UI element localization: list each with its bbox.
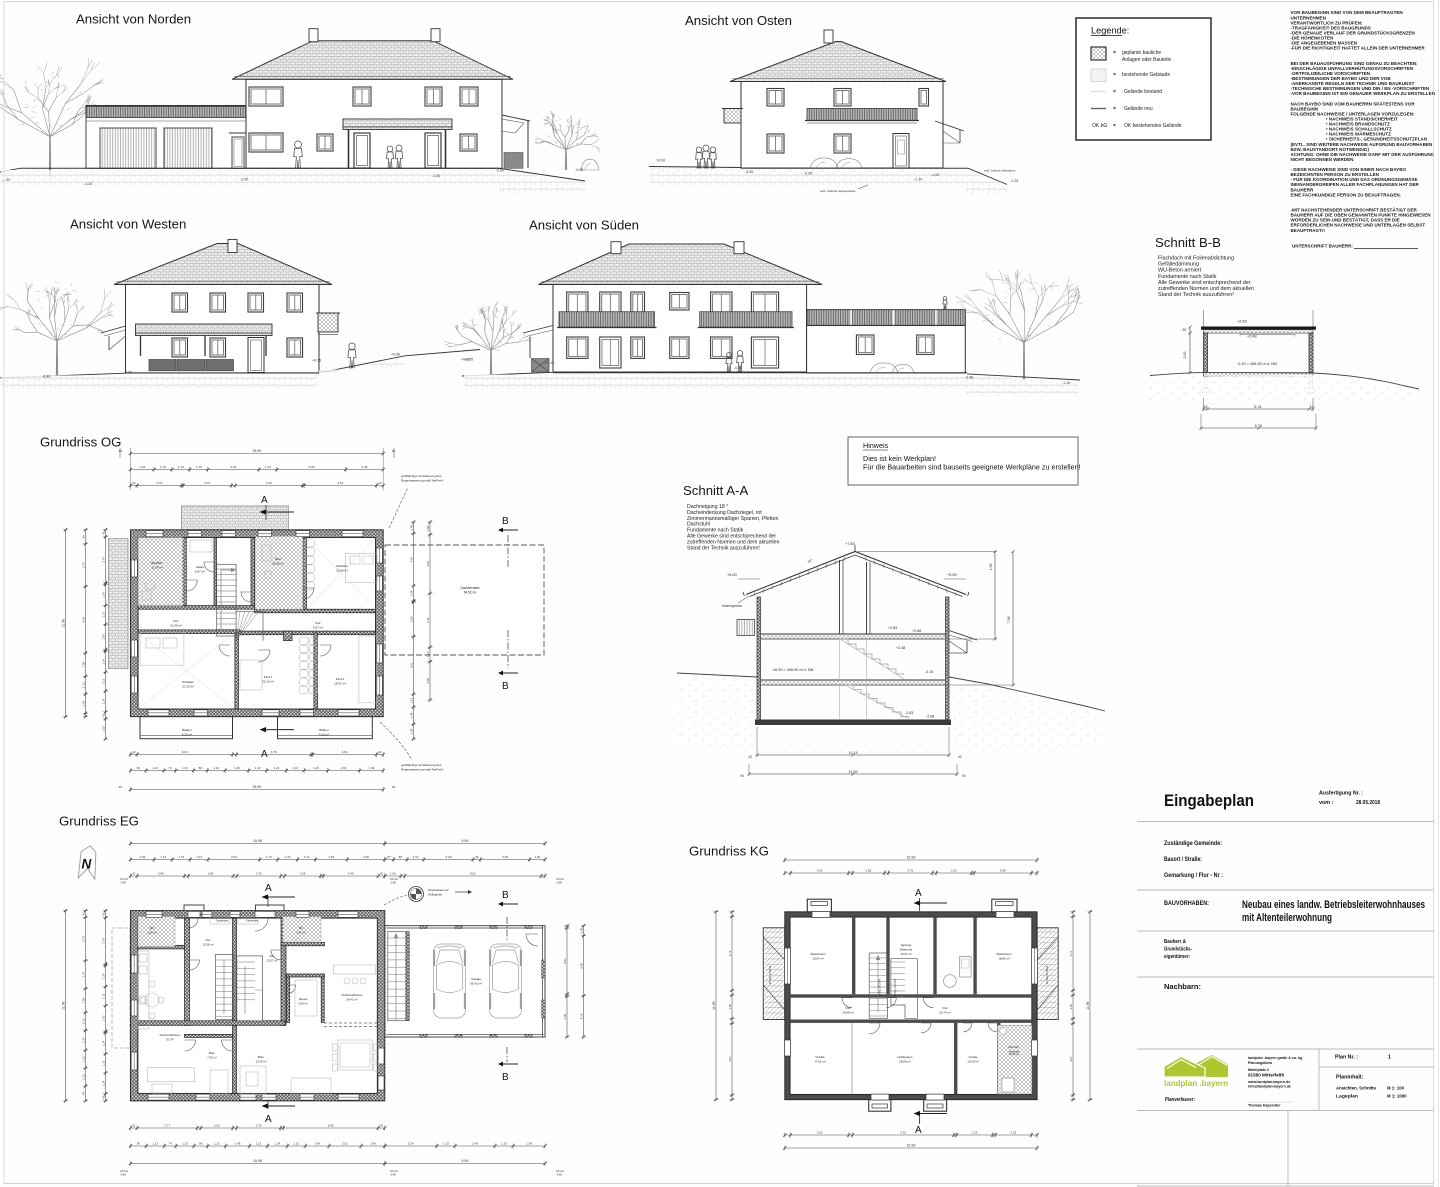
svg-text:B: B	[502, 681, 509, 692]
svg-text:+7.83: +7.83	[845, 542, 855, 546]
svg-text:1.13: 1.13	[81, 1056, 85, 1062]
svg-text:1.13: 1.13	[501, 1142, 507, 1146]
svg-text:Vorräte: Vorräte	[815, 1055, 825, 1059]
svg-text:19,37 m²: 19,37 m²	[900, 952, 911, 956]
svg-text:Thomas Kapsreiter: Thomas Kapsreiter	[1248, 1104, 1281, 1108]
svg-text:Schnitt B-B: Schnitt B-B	[1155, 235, 1221, 250]
svg-text:A: A	[265, 1114, 272, 1125]
svg-text:27,20 m²: 27,20 m²	[182, 685, 194, 689]
svg-text:28,06 m²: 28,06 m²	[899, 1060, 910, 1064]
svg-text:-1.30: -1.30	[914, 178, 922, 182]
svg-text:Ausfertigung Nr. :: Ausfertigung Nr. :	[1319, 791, 1363, 797]
svg-text:4,26 m²: 4,26 m²	[319, 733, 329, 737]
svg-text:42: 42	[101, 1095, 105, 1099]
svg-text:-0.60: -0.60	[496, 169, 504, 173]
svg-text:12,49 m²: 12,49 m²	[255, 1060, 266, 1064]
svg-text:-0.15: -0.15	[925, 670, 933, 674]
svg-text:Gemarkung / Flur - Nr :: Gemarkung / Flur - Nr :	[1164, 873, 1223, 879]
svg-text:OK bG: OK bG	[120, 1169, 128, 1173]
svg-text:+2.83: +2.83	[888, 626, 897, 630]
svg-text:3.63: 3.63	[817, 869, 823, 873]
svg-text:1.13: 1.13	[196, 855, 202, 859]
svg-text:2.25: 2.25	[972, 1131, 978, 1135]
svg-text:15.99: 15.99	[906, 1144, 915, 1148]
svg-text:A: A	[265, 883, 272, 894]
svg-text:1.49: 1.49	[314, 1142, 320, 1146]
svg-text:Grundriss OG: Grundriss OG	[40, 434, 121, 449]
svg-text:1.24: 1.24	[285, 855, 291, 859]
svg-text:B: B	[502, 1072, 509, 1083]
svg-text:5.01: 5.01	[409, 662, 413, 668]
svg-text:Balkon: Balkon	[182, 728, 192, 732]
svg-text:-0.80: -0.80	[556, 881, 562, 885]
svg-text:1.49: 1.49	[313, 766, 319, 770]
svg-text:1.13: 1.13	[409, 697, 413, 703]
svg-text:Planungsbüro: Planungsbüro	[1248, 1061, 1273, 1065]
svg-text:1.24: 1.24	[275, 1142, 281, 1146]
svg-text:Hinweis: Hinweis	[863, 441, 889, 450]
svg-text:-0.80: -0.80	[556, 1173, 562, 1177]
svg-text:1.13: 1.13	[160, 465, 166, 469]
svg-text:42: 42	[132, 481, 136, 485]
svg-text:Flachdach mit Folienabdichtung: Flachdach mit Folienabdichtung	[1158, 256, 1234, 262]
svg-text:1.24: 1.24	[81, 1037, 85, 1043]
svg-text:4.21: 4.21	[426, 617, 430, 623]
svg-text:11.99: 11.99	[61, 1002, 65, 1010]
svg-text:42: 42	[380, 872, 384, 876]
svg-text:15.99: 15.99	[253, 1159, 262, 1163]
svg-text:1.99: 1.99	[526, 1142, 532, 1146]
svg-text:2.25: 2.25	[1011, 1131, 1017, 1135]
svg-text:Schmutz-: Schmutz-	[1008, 1045, 1019, 1049]
svg-text:Flur: Flur	[206, 938, 211, 942]
svg-text:1.00: 1.00	[534, 855, 540, 859]
svg-text:2.74: 2.74	[101, 938, 105, 944]
svg-text:landplan .bayern gmbh & co. kg: landplan .bayern gmbh & co. kg	[1248, 1056, 1302, 1060]
svg-text:Eingabeplan: Eingabeplan	[1164, 791, 1254, 810]
svg-text:Garderobe: Garderobe	[216, 919, 229, 923]
svg-text:42: 42	[132, 1124, 136, 1128]
svg-text:4.71: 4.71	[1069, 950, 1073, 956]
svg-text:2.98: 2.98	[158, 872, 164, 876]
svg-text:±0.00 = 496.50 m ü. NN: ±0.00 = 496.50 m ü. NN	[773, 668, 814, 672]
svg-text:4.58: 4.58	[426, 561, 430, 567]
svg-text:4.56: 4.56	[409, 556, 413, 562]
svg-text:+5.00: +5.00	[727, 573, 737, 577]
svg-text:Grundriss EG: Grundriss EG	[59, 814, 139, 829]
svg-text:16,56 m²: 16,56 m²	[272, 562, 284, 566]
svg-text:1.00: 1.00	[579, 927, 583, 933]
svg-text:3,41 m²: 3,41 m²	[296, 931, 306, 935]
svg-text:Bauherr &: Bauherr &	[1164, 939, 1186, 945]
svg-text:-VOR BAUBEGINN IST EIN GENAUER: -VOR BAUBEGINN IST EIN GENAUER WERKPLAN …	[1291, 91, 1436, 96]
svg-text:9.99: 9.99	[461, 839, 468, 843]
svg-text:+0.66: +0.66	[391, 353, 400, 357]
svg-text:zutreffenden Normen und dem ak: zutreffenden Normen und dem aktuellen	[1158, 286, 1254, 292]
svg-text:Gelände bestand: Gelände bestand	[1124, 89, 1162, 95]
svg-text:42: 42	[378, 481, 382, 485]
svg-text:-0.80: -0.80	[120, 1173, 126, 1177]
svg-text:OK bG: OK bG	[390, 877, 398, 881]
svg-text:2.20: 2.20	[951, 869, 957, 873]
svg-text:W.Stg 17/27/A: W.Stg 17/27/A	[878, 979, 882, 997]
svg-text:1.13: 1.13	[213, 766, 219, 770]
svg-text:35: 35	[1182, 328, 1186, 332]
svg-text:-1.25: -1.25	[1010, 179, 1018, 183]
svg-text:10,30 m²: 10,30 m²	[170, 624, 182, 628]
svg-text:Schlafen: Schlafen	[336, 564, 348, 568]
svg-text:+0.15: +0.15	[545, 361, 554, 365]
svg-text:Speise: Speise	[299, 997, 308, 1001]
svg-text:Flur: Flur	[270, 954, 275, 958]
svg-text:+2.48: +2.48	[896, 646, 905, 650]
svg-text:1.13: 1.13	[178, 855, 184, 859]
svg-text:20,66 m²: 20,66 m²	[336, 569, 348, 573]
svg-text:BAUVORHABEN:: BAUVORHABEN:	[1164, 901, 1209, 907]
svg-text:-2.83: -2.83	[905, 711, 913, 715]
svg-text:Anlagen oder Bauteile: Anlagen oder Bauteile	[1122, 57, 1171, 63]
svg-text:2.36: 2.36	[363, 855, 369, 859]
svg-text:5,63 m²: 5,63 m²	[298, 1002, 308, 1006]
svg-text:Grundstücks-: Grundstücks-	[1164, 947, 1192, 953]
svg-text:NICHT BEGONNEN WERDEN: NICHT BEGONNEN WERDEN	[1291, 157, 1354, 162]
svg-text:22,74 m²: 22,74 m²	[939, 1011, 950, 1015]
svg-text:-1.00: -1.00	[2, 178, 10, 182]
svg-text:-1.30: -1.30	[84, 182, 92, 186]
svg-text:Garderobe: Garderobe	[246, 919, 259, 923]
svg-text:1.24: 1.24	[274, 766, 280, 770]
svg-text:2.00: 2.00	[214, 1124, 220, 1128]
svg-text:8.51: 8.51	[470, 872, 476, 876]
svg-text:13,27 m²: 13,27 m²	[266, 959, 277, 963]
svg-text:1.13: 1.13	[81, 1018, 85, 1024]
svg-text:M 1: 100: M 1: 100	[1387, 1086, 1404, 1091]
svg-text:1: 1	[1388, 1055, 1391, 1061]
svg-text:W.Stg 17/27/A: W.Stg 17/27/A	[893, 979, 897, 997]
svg-text:11.99: 11.99	[848, 770, 857, 774]
svg-text:-0.15 = 496.35 m ü. NN: -0.15 = 496.35 m ü. NN	[1237, 362, 1277, 366]
svg-text:6.51: 6.51	[563, 958, 567, 964]
svg-text:74: 74	[168, 766, 172, 770]
svg-text:6.00: 6.00	[579, 963, 583, 969]
svg-text:Dachterrasse: Dachterrasse	[461, 586, 480, 590]
svg-text:1.13: 1.13	[152, 766, 158, 770]
svg-text:4.01: 4.01	[342, 750, 348, 754]
svg-text:Güllegrube: Güllegrube	[428, 893, 443, 897]
svg-text:11.99: 11.99	[712, 1002, 716, 1010]
svg-text:1.99: 1.99	[328, 855, 334, 859]
svg-text:64,52 m²: 64,52 m²	[464, 591, 477, 595]
svg-text:4.70: 4.70	[271, 750, 277, 754]
svg-text:Regenwassers gemäß NwFreiV: Regenwassers gemäß NwFreiV	[401, 479, 443, 483]
svg-text:A: A	[261, 495, 268, 506]
svg-text:Vorräte: Vorräte	[968, 1055, 978, 1059]
svg-text:86: 86	[199, 766, 203, 770]
svg-text:B: B	[502, 890, 509, 901]
svg-text:-0.80: -0.80	[42, 375, 50, 379]
svg-text:1.30: 1.30	[409, 590, 413, 596]
svg-text:=0.00: =0.00	[656, 159, 665, 163]
svg-text:49: 49	[475, 855, 479, 859]
svg-text:großflächige Versickerung des: großflächige Versickerung des	[401, 474, 442, 478]
svg-text:1.13: 1.13	[101, 678, 105, 684]
svg-text:7,03 m²: 7,03 m²	[207, 1056, 217, 1060]
svg-text:1.24: 1.24	[101, 592, 105, 598]
svg-text:1.13: 1.13	[304, 855, 310, 859]
svg-text:Alle Gewerke sind entschpreche: Alle Gewerke sind entschprechend der	[1158, 280, 1251, 286]
svg-text:Nachbarn:: Nachbarn:	[1164, 982, 1201, 991]
svg-text:1.24: 1.24	[101, 1040, 105, 1046]
svg-text:WU-Beton armiert: WU-Beton armiert	[1158, 268, 1202, 274]
svg-text:1.13: 1.13	[214, 1142, 220, 1146]
svg-text:seitl. Gelände Hauskante: seitl. Gelände Hauskante	[984, 169, 1016, 173]
svg-text:Waschraum: Waschraum	[996, 952, 1012, 956]
svg-text:1.13: 1.13	[101, 993, 105, 999]
svg-text:1.00: 1.00	[409, 525, 413, 531]
svg-text:=: =	[1113, 50, 1116, 56]
svg-text:1.00: 1.00	[390, 872, 396, 876]
svg-text:Küchen/Wohnen: Küchen/Wohnen	[342, 993, 363, 997]
svg-text:großflächige Versickerung des: großflächige Versickerung des	[401, 763, 442, 767]
svg-text:mit Altenteilerwohnung: mit Altenteilerwohnung	[1242, 912, 1332, 924]
svg-text:-1.00: -1.00	[240, 178, 248, 182]
svg-text:5,01 m²: 5,01 m²	[147, 931, 157, 935]
svg-text:Planverfasser:: Planverfasser:	[1165, 1097, 1195, 1103]
svg-text:3.77: 3.77	[164, 1124, 170, 1128]
svg-text:94: 94	[81, 1091, 85, 1095]
svg-text:-1.10: -1.10	[1062, 381, 1070, 385]
svg-text:1.13: 1.13	[294, 1142, 300, 1146]
svg-text:3.20: 3.20	[446, 855, 452, 859]
svg-text:Plan Nr. :: Plan Nr. :	[1335, 1055, 1358, 1061]
svg-text:2.01: 2.01	[342, 1142, 348, 1146]
svg-text:6.31: 6.31	[1254, 405, 1261, 409]
svg-text:1.13: 1.13	[255, 766, 261, 770]
svg-text:-0.60: -0.60	[124, 371, 132, 375]
svg-text:10,29 m²: 10,29 m²	[1009, 1052, 1020, 1056]
svg-text:3.24: 3.24	[408, 1142, 414, 1146]
svg-text:13,36 m²: 13,36 m²	[202, 943, 213, 947]
svg-text:99: 99	[137, 766, 141, 770]
svg-text:1.50: 1.50	[728, 1004, 732, 1010]
svg-text:1.13: 1.13	[265, 465, 271, 469]
svg-text:6,26 m²: 6,26 m²	[182, 733, 192, 737]
svg-text:1.49: 1.49	[370, 1142, 376, 1146]
svg-text:42: 42	[81, 912, 85, 916]
svg-text:91580 Mitterfelth: 91580 Mitterfelth	[1248, 1073, 1284, 1078]
svg-text:Legende:: Legende:	[1091, 26, 1129, 36]
svg-text:Heizung: Heizung	[901, 943, 912, 947]
svg-text:OK bestehendes Gelände: OK bestehendes Gelände	[1124, 123, 1182, 129]
svg-text:99: 99	[137, 1142, 141, 1146]
svg-text:3.00: 3.00	[426, 678, 430, 684]
svg-text:Stand der Technik auszuführen!: Stand der Technik auszuführen!	[1158, 292, 1234, 298]
svg-text:1.48: 1.48	[409, 712, 413, 718]
svg-text:=: =	[1113, 106, 1116, 112]
svg-text:74: 74	[169, 1142, 173, 1146]
svg-text:Flur: Flur	[315, 621, 320, 625]
svg-text:Bad: Bad	[275, 557, 281, 561]
svg-text:1.24: 1.24	[101, 659, 105, 665]
svg-text:1.50: 1.50	[81, 661, 85, 667]
svg-text:2.76: 2.76	[256, 872, 262, 876]
svg-text:1.95: 1.95	[989, 564, 993, 571]
svg-text:1.13: 1.13	[101, 612, 105, 618]
svg-text:88: 88	[399, 855, 403, 859]
svg-text:1.49: 1.49	[234, 766, 240, 770]
svg-text:11,76 m²: 11,76 m²	[151, 566, 163, 570]
svg-text:UNTERSCHRIFT BAUHERR:: UNTERSCHRIFT BAUHERR:	[1292, 244, 1353, 249]
svg-text:90: 90	[962, 774, 966, 778]
svg-text:OK bG: OK bG	[390, 1169, 398, 1173]
svg-text:=: =	[1113, 123, 1116, 129]
svg-text:Gäste: Gäste	[196, 565, 204, 569]
svg-text:geplante bauliche: geplante bauliche	[1122, 50, 1161, 56]
svg-text:Planinhalt:: Planinhalt:	[1336, 1075, 1364, 1081]
svg-text:WC: WC	[150, 926, 155, 930]
svg-text:-0.30: -0.30	[734, 366, 742, 370]
svg-text:90: 90	[740, 774, 744, 778]
svg-text:Garage: Garage	[471, 977, 481, 981]
svg-text:5.96: 5.96	[328, 1124, 334, 1128]
svg-text:+0.15: +0.15	[312, 359, 321, 363]
svg-text:4.10: 4.10	[579, 1013, 583, 1019]
svg-text:7.98: 7.98	[1007, 617, 1011, 624]
svg-text:1.13: 1.13	[292, 766, 298, 770]
svg-text:6.33: 6.33	[900, 1131, 906, 1135]
svg-text:3.24: 3.24	[230, 465, 236, 469]
svg-text:Kastengesims: Kastengesims	[722, 604, 742, 608]
svg-text:=: =	[1113, 72, 1116, 78]
svg-text:Fundamente nach Statik: Fundamente nach Statik	[1158, 274, 1217, 280]
svg-text:18,04 m²: 18,04 m²	[812, 957, 823, 961]
svg-text:3.00: 3.00	[409, 616, 413, 622]
svg-text:-0.80: -0.80	[390, 881, 396, 885]
svg-text:2.00: 2.00	[866, 869, 872, 873]
svg-text:B: B	[502, 516, 509, 527]
svg-text:1.50: 1.50	[101, 634, 105, 640]
svg-text:1.13: 1.13	[178, 465, 184, 469]
svg-text:Kind 2: Kind 2	[336, 677, 345, 681]
svg-text:2.74: 2.74	[101, 557, 105, 563]
svg-text:17,61 m²: 17,61 m²	[814, 1060, 825, 1064]
svg-text:1.13: 1.13	[256, 1142, 262, 1146]
svg-text:1.10: 1.10	[413, 855, 419, 859]
svg-text:Ansicht von Osten: Ansicht von Osten	[685, 13, 792, 28]
svg-text:11.99: 11.99	[61, 619, 65, 627]
svg-text:3.24: 3.24	[231, 855, 237, 859]
svg-text:1.13: 1.13	[81, 1074, 85, 1080]
svg-text:Waschraum: Waschraum	[810, 952, 826, 956]
svg-text:Bauort / Straße:: Bauort / Straße:	[1164, 857, 1202, 863]
svg-text:6.01: 6.01	[182, 750, 188, 754]
svg-text:56,42 m²: 56,42 m²	[470, 982, 482, 986]
svg-text:42: 42	[748, 755, 752, 759]
svg-text:3.63: 3.63	[817, 1131, 823, 1135]
svg-text:seitl. Gelände Garagenkante: seitl. Gelände Garagenkante	[820, 189, 856, 193]
svg-text:OK bG: OK bG	[556, 1169, 564, 1173]
svg-text:6.79: 6.79	[1255, 424, 1262, 428]
svg-text:4.36: 4.36	[308, 465, 314, 469]
svg-text:Grundriss KG: Grundriss KG	[689, 844, 769, 859]
svg-text:3.01: 3.01	[204, 481, 210, 485]
svg-text:1.00: 1.00	[426, 525, 430, 531]
svg-text:1.24: 1.24	[101, 698, 105, 704]
svg-text:+2.68: +2.68	[912, 629, 921, 633]
svg-text:Ansicht von Süden: Ansicht von Süden	[529, 218, 639, 233]
svg-text:1.50: 1.50	[81, 997, 85, 1003]
svg-text:1.24: 1.24	[101, 1080, 105, 1086]
svg-text:Gefälledämmung: Gefälledämmung	[1158, 262, 1199, 268]
svg-text:54,43 m²: 54,43 m²	[346, 998, 357, 1002]
svg-text:15.99: 15.99	[906, 856, 915, 860]
svg-text:1.13: 1.13	[182, 1142, 188, 1146]
svg-text:Flur: Flur	[846, 1006, 851, 1010]
svg-text:90: 90	[119, 785, 123, 789]
svg-text:1.50: 1.50	[101, 1015, 105, 1021]
svg-text:Ansicht von Westen: Ansicht von Westen	[70, 217, 186, 232]
svg-text:2.74: 2.74	[81, 936, 85, 942]
svg-text:1.13: 1.13	[81, 682, 85, 688]
svg-text:WC: WC	[299, 926, 304, 930]
svg-text:1.13: 1.13	[182, 766, 188, 770]
svg-text:Ansichten, Schnitte: Ansichten, Schnitte	[1336, 1086, 1376, 1091]
svg-text:86: 86	[199, 1142, 203, 1146]
svg-text:+5.00: +5.00	[947, 573, 957, 577]
svg-text:2.36: 2.36	[362, 465, 368, 469]
svg-text:3.45: 3.45	[348, 872, 354, 876]
svg-text:-FÜR DIE RICHTIGKEIT HAFTET A: -FÜR DIE RICHTIGKEIT HAFTET ALLEIN DER U…	[1291, 45, 1426, 51]
svg-text:53,74: 53,74	[167, 1038, 174, 1042]
svg-text:16 Stg 17/27/A: 16 Stg 17/27/A	[768, 966, 772, 985]
svg-text:2.76: 2.76	[256, 1124, 262, 1128]
svg-text:3.58: 3.58	[1000, 869, 1006, 873]
svg-text:landplan .bayern: landplan .bayern	[1164, 1079, 1228, 1088]
svg-text:-0.80: -0.80	[390, 1173, 396, 1177]
svg-text:Ansicht von Norden: Ansicht von Norden	[76, 12, 191, 27]
svg-text:2.76: 2.76	[156, 481, 162, 485]
svg-text:Schlafen: Schlafen	[182, 680, 194, 684]
svg-text:1.13: 1.13	[196, 465, 202, 469]
svg-text:+0.26: +0.26	[461, 358, 470, 362]
svg-text:Bad/WC: Bad/WC	[151, 561, 163, 565]
svg-text:57: 57	[388, 855, 392, 859]
svg-text:4.71: 4.71	[728, 950, 732, 956]
svg-text:eigentümer:: eigentümer:	[1164, 954, 1190, 960]
svg-text:Stand der Technik auszuführen!: Stand der Technik auszuführen!	[687, 545, 760, 551]
svg-text:-0.50: -0.50	[575, 168, 583, 172]
svg-text:-0.96: -0.96	[965, 376, 973, 380]
svg-text:4.57: 4.57	[1069, 1056, 1073, 1062]
svg-text:1.13: 1.13	[152, 1142, 158, 1146]
svg-text:A: A	[915, 1125, 922, 1136]
svg-text:42: 42	[132, 872, 136, 876]
svg-text:1.13: 1.13	[101, 1060, 105, 1066]
svg-text:Marktplatz 2: Marktplatz 2	[1248, 1068, 1269, 1072]
svg-text:1.24: 1.24	[101, 973, 105, 979]
svg-text:+2.83: +2.83	[1237, 320, 1247, 324]
svg-text:1.20: 1.20	[101, 726, 105, 732]
svg-text:-2.98: -2.98	[926, 715, 934, 719]
svg-text:Schnitt A-A: Schnitt A-A	[683, 483, 748, 498]
svg-text:1.76: 1.76	[81, 972, 85, 978]
svg-text:4.51: 4.51	[337, 481, 343, 485]
svg-text:vom :: vom :	[1319, 800, 1334, 806]
svg-text:-1.00: -1.00	[931, 173, 939, 177]
svg-text:bestehende Gebäude: bestehende Gebäude	[1122, 72, 1170, 78]
svg-text:Regenwassers gemäß NwFreiV: Regenwassers gemäß NwFreiV	[401, 768, 443, 772]
svg-text:3.20: 3.20	[502, 855, 508, 859]
